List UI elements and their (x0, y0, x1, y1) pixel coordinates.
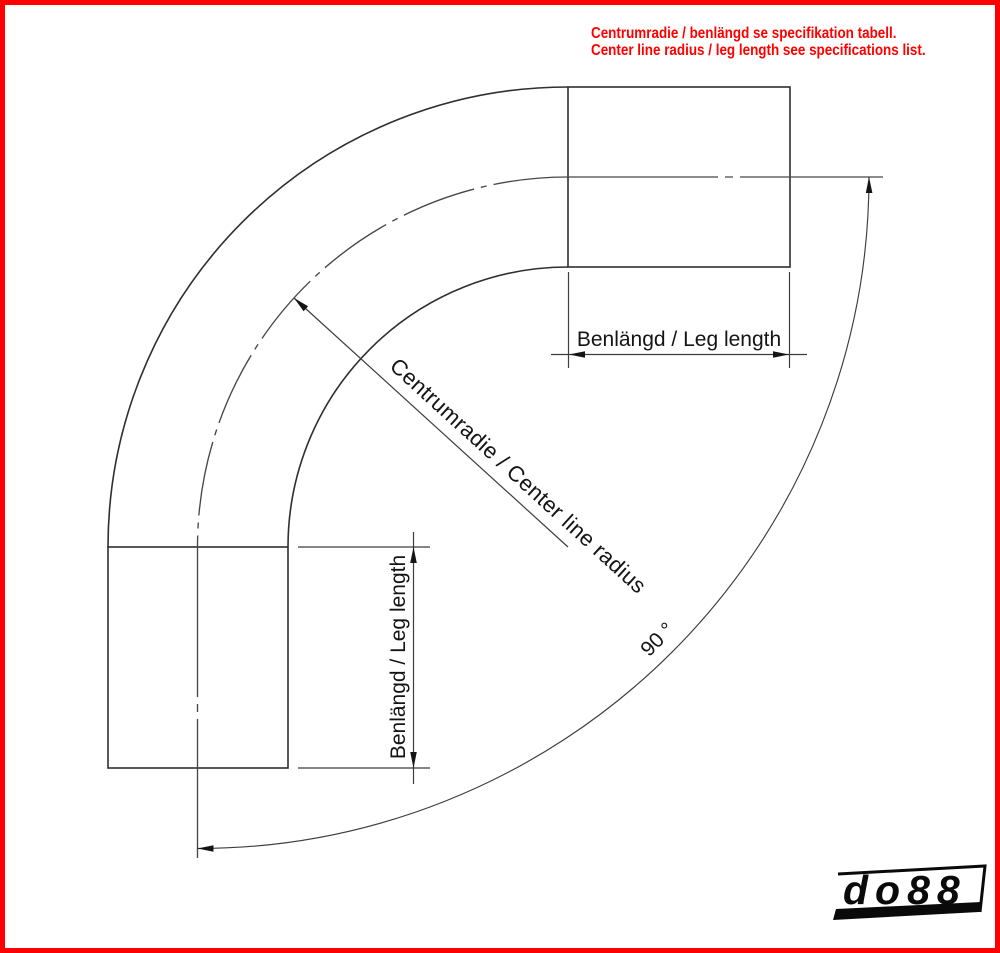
arrowhead-arc-top (866, 177, 873, 193)
centerlines (198, 177, 884, 858)
arrowhead-up (410, 547, 417, 563)
pipe-outer-arc (108, 87, 568, 547)
spec-notice: Centrumradie / benlängd se specifikation… (591, 25, 989, 59)
arrowhead-arc-bottom (198, 845, 214, 852)
leader-line (294, 298, 568, 547)
arrowhead-right (773, 351, 789, 358)
spec-notice-line-1: Centrumradie / benlängd se specifikation… (591, 25, 896, 42)
angle-dimension (198, 177, 873, 852)
arrowhead-down (410, 752, 417, 768)
do88-logo: do88 (826, 856, 992, 938)
do88-logo-graphic: do88 (826, 856, 992, 938)
dimension-leg-top (551, 272, 807, 368)
leg-length-top-label: Benlängd / Leg length (577, 328, 781, 352)
angle-arc (198, 177, 870, 849)
logo-text-88: 88 (907, 867, 967, 913)
radius-leader (294, 298, 568, 547)
logo-text-do: do (843, 867, 907, 913)
arrowhead-left (569, 351, 585, 358)
centerline-arc (198, 177, 569, 547)
spec-notice-line-2: Center line radius / leg length see spec… (591, 42, 926, 59)
leg-length-left-label: Benlängd / Leg length (387, 555, 411, 759)
drawing-canvas: Centrumradie / benlängd se specifikation… (0, 0, 1000, 953)
logo-text: do88 (843, 867, 967, 913)
